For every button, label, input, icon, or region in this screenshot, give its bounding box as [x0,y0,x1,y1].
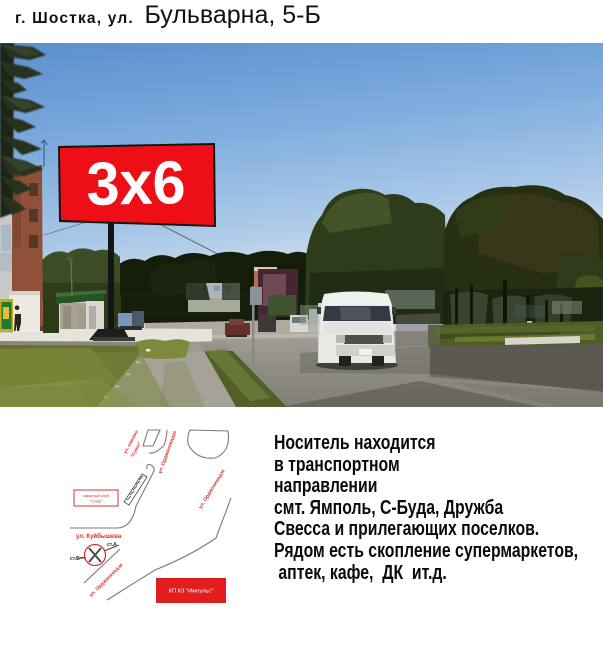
svg-text:ст.А: ст.А [107,542,117,548]
svg-text:"Слав": "Слав" [90,499,103,504]
svg-text:3x6: 3x6 [86,148,186,218]
svg-text:офисный клуб: офисный клуб [83,493,110,498]
svg-text:КП КЗ "Импульс": КП КЗ "Импульс" [168,589,213,595]
svg-text:ст.Б: ст.Б [70,556,80,562]
svg-text:ул. Орджоникидзе: ул. Орджоникидзе [198,468,227,510]
svg-text:ул. Орджоникидзе: ул. Орджоникидзе [157,430,178,475]
svg-text:ул. Куйбышева: ул. Куйбышева [76,533,122,540]
